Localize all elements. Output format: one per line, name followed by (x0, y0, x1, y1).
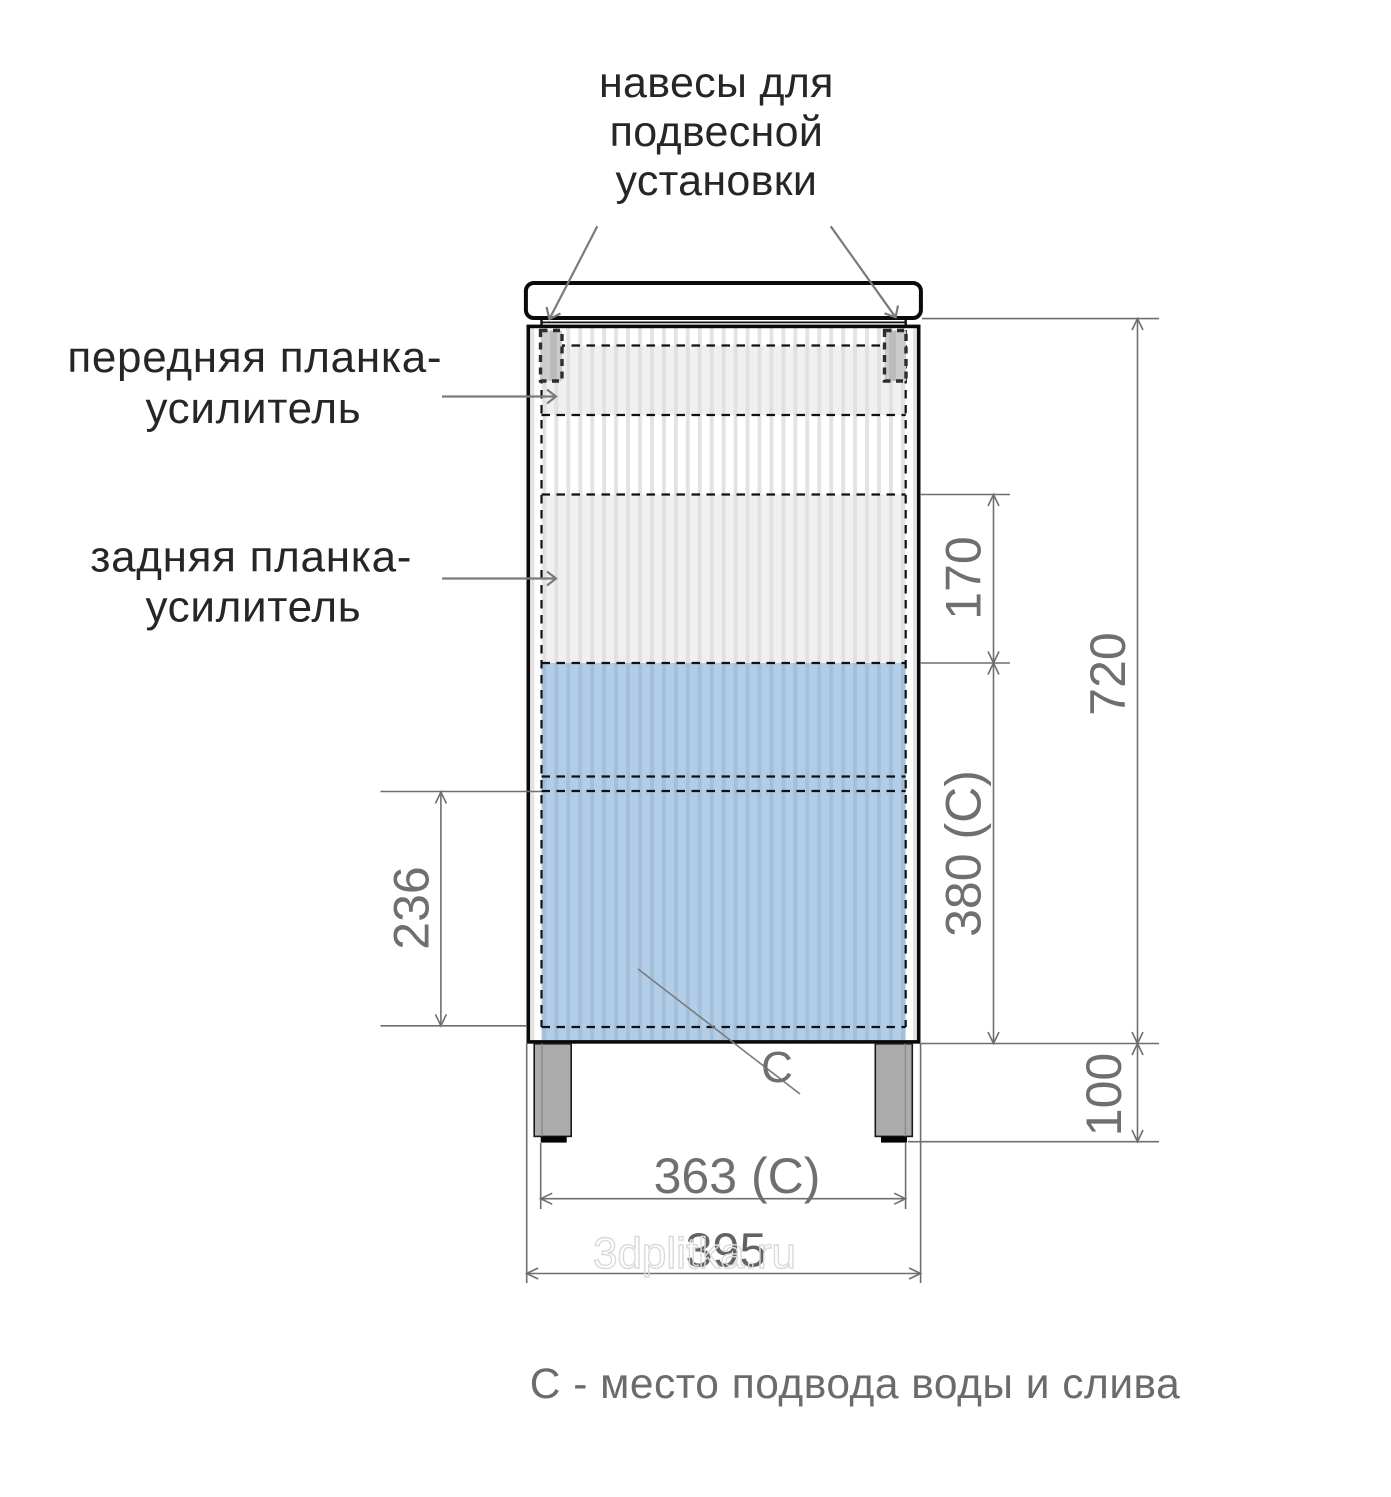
svg-text:100: 100 (1076, 1053, 1132, 1136)
svg-text:задняя планка-: задняя планка- (90, 533, 412, 582)
svg-text:363 (С): 363 (С) (654, 1148, 821, 1204)
svg-text:170: 170 (936, 536, 992, 619)
svg-text:навесы для: навесы для (599, 59, 834, 107)
svg-text:3dplitka.ru: 3dplitka.ru (593, 1229, 796, 1278)
svg-text:С: С (761, 1043, 793, 1092)
svg-text:236: 236 (383, 866, 439, 949)
svg-text:усилитель: усилитель (145, 384, 361, 433)
svg-text:усилитель: усилитель (145, 583, 361, 632)
svg-text:С - место подвода воды и слива: С - место подвода воды и слива (530, 1361, 1181, 1408)
svg-text:передняя планка-: передняя планка- (67, 333, 442, 382)
svg-text:подвесной: подвесной (610, 108, 824, 156)
svg-text:установки: установки (616, 157, 818, 205)
svg-text:720: 720 (1080, 632, 1136, 715)
svg-text:380 (С): 380 (С) (936, 770, 992, 937)
